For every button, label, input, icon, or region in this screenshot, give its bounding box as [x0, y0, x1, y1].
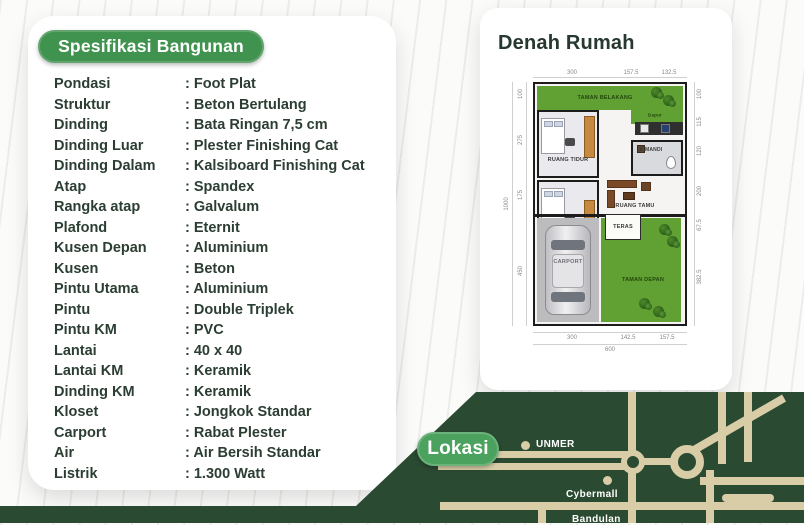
room-label-ruang-tidur-1: RUANG TIDUR	[548, 157, 589, 163]
spec-row: Dinding DalamKalsiboard Finishing Cat	[54, 156, 384, 177]
carport-area	[537, 218, 599, 322]
front-wall	[639, 214, 685, 217]
spec-label: Carport	[54, 423, 185, 444]
dimension-line	[533, 344, 687, 345]
windshield	[551, 240, 585, 250]
spec-row: Pintu UtamaAluminium	[54, 279, 384, 300]
dimension-line	[526, 82, 527, 326]
spec-row: Lantai40 x 40	[54, 341, 384, 362]
map-road	[440, 502, 804, 510]
map-road	[538, 506, 546, 523]
map-label-cybermall: Cybermall	[566, 489, 618, 500]
map-label-bandulan: Bandulan	[572, 514, 621, 525]
dimension-label: 275	[518, 135, 524, 145]
dimension-label: 142.5	[620, 335, 635, 341]
dimension-label: 600	[605, 347, 615, 353]
unmer-marker-icon	[521, 441, 530, 450]
room-label-taman-depan: TAMAN DEPAN	[622, 277, 664, 283]
lokasi-badge: Lokasi	[417, 432, 499, 466]
dimension-label: 100	[697, 89, 703, 99]
spec-label: Pintu	[54, 300, 185, 321]
spec-label: Kloset	[54, 402, 185, 423]
plan-title: Denah Rumah	[498, 32, 635, 55]
spec-label: Kusen	[54, 259, 185, 280]
spec-row: KlosetJongkok Standar	[54, 402, 384, 423]
spec-row: AirAir Bersih Standar	[54, 443, 384, 464]
map-road	[718, 392, 726, 464]
dimension-label: 120	[697, 146, 703, 156]
spec-label: Pintu KM	[54, 320, 185, 341]
spec-label: Dinding Luar	[54, 136, 185, 157]
room-label-dapur: Dapur	[648, 113, 662, 118]
map-road	[744, 392, 752, 462]
front-wall	[535, 214, 605, 217]
spec-label: Listrik	[54, 464, 185, 485]
pillow	[544, 191, 553, 197]
spec-row: CarportRabat Plester	[54, 423, 384, 444]
roundabout-icon	[621, 450, 645, 474]
spec-label: Atap	[54, 177, 185, 198]
spec-row: Rangka atapGalvalum	[54, 197, 384, 218]
spec-row: DindingBata Ringan 7,5 cm	[54, 115, 384, 136]
plant-icon	[653, 306, 664, 317]
map-road	[722, 494, 774, 502]
map-road	[700, 477, 804, 485]
dimension-line	[533, 332, 687, 333]
spec-value: 40 x 40	[185, 341, 384, 362]
spec-row: Pintu KMPVC	[54, 320, 384, 341]
spec-value: Bata Ringan 7,5 cm	[185, 115, 384, 136]
spec-label: Dinding Dalam	[54, 156, 185, 177]
room-label-teras: TERAS	[613, 224, 633, 230]
floorplan-card: Denah Rumah 300 157.5 132.5 300 142.5 15…	[480, 8, 732, 390]
bed	[541, 118, 565, 154]
dimension-label: 157.5	[623, 70, 638, 76]
spec-row: PintuDouble Triplek	[54, 300, 384, 321]
spec-value: Keramik	[185, 361, 384, 382]
spec-label: Pondasi	[54, 74, 185, 95]
spec-list: PondasiFoot Plat StrukturBeton Bertulang…	[54, 74, 384, 484]
spec-value: Aluminium	[185, 279, 384, 300]
spec-label: Dinding	[54, 115, 185, 136]
dimension-label: 450	[518, 266, 524, 276]
pillow	[544, 121, 553, 127]
spec-row: PlafondEternit	[54, 218, 384, 239]
room-label-ruang-tamu: RUANG TAMU	[615, 203, 654, 209]
room-label-taman-belakang: TAMAN BELAKANG	[578, 95, 633, 101]
dimension-label: 200	[697, 186, 703, 196]
dimension-label: 382.5	[697, 269, 703, 284]
sofa	[607, 180, 637, 188]
spec-value: Galvalum	[185, 197, 384, 218]
spec-row: Kusen DepanAluminium	[54, 238, 384, 259]
plant-icon	[663, 95, 674, 106]
floorplan: 300 157.5 132.5 300 142.5 157.5 600 100 …	[500, 70, 712, 366]
spec-row: AtapSpandex	[54, 177, 384, 198]
spec-label: Air	[54, 443, 185, 464]
map-road	[628, 468, 636, 523]
spec-label: Rangka atap	[54, 197, 185, 218]
spec-row: Dinding KMKeramik	[54, 382, 384, 403]
spec-label: Kusen Depan	[54, 238, 185, 259]
room-label-kmandi: K.MANDI	[640, 147, 663, 153]
spec-label: Lantai	[54, 341, 185, 362]
dimension-label: 175	[518, 190, 524, 200]
spec-value: Rabat Plester	[185, 423, 384, 444]
spec-value: Keramik	[185, 382, 384, 403]
spec-label: Struktur	[54, 95, 185, 116]
dimension-line	[512, 82, 513, 326]
stove-icon	[661, 124, 670, 133]
spec-row: Lantai KMKeramik	[54, 361, 384, 382]
dimension-label: 132.5	[661, 70, 676, 76]
plant-icon	[651, 87, 662, 98]
spec-value: 1.300 Watt	[185, 464, 384, 485]
dimension-line	[694, 82, 695, 326]
spec-card: Spesifikasi Bangunan PondasiFoot Plat St…	[28, 16, 396, 490]
spec-value: Double Triplek	[185, 300, 384, 321]
wardrobe	[584, 116, 595, 158]
spec-value: Beton	[185, 259, 384, 280]
bedroom-1	[537, 110, 599, 178]
spec-row: Dinding LuarPlester Finishing Cat	[54, 136, 384, 157]
map-road	[692, 395, 786, 454]
spec-value: Eternit	[185, 218, 384, 239]
dimension-label: 300	[567, 335, 577, 341]
car-icon	[545, 225, 591, 315]
spec-value: Spandex	[185, 177, 384, 198]
spec-row: Listrik1.300 Watt	[54, 464, 384, 485]
cybermall-marker-icon	[603, 476, 612, 485]
spec-label: Plafond	[54, 218, 185, 239]
map-label-unmer: UNMER	[536, 439, 575, 450]
toilet	[666, 156, 676, 169]
sofa	[607, 190, 615, 208]
plant-icon	[639, 298, 650, 309]
spec-label: Dinding KM	[54, 382, 185, 403]
spec-value: Plester Finishing Cat	[185, 136, 384, 157]
bathroom	[631, 140, 683, 176]
spec-value: Beton Bertulang	[185, 95, 384, 116]
dimension-label: 157.5	[659, 335, 674, 341]
dimension-line	[533, 77, 687, 78]
house-plot: TAMAN BELAKANG Dapur RUANG TIDUR	[533, 82, 687, 326]
spec-row: KusenBeton	[54, 259, 384, 280]
pillow	[554, 191, 563, 197]
coffee-table	[623, 192, 635, 200]
room-label-carport: CARPORT	[553, 259, 582, 265]
spec-row: StrukturBeton Bertulang	[54, 95, 384, 116]
spec-label: Pintu Utama	[54, 279, 185, 300]
armchair	[641, 182, 651, 191]
spec-value: Jongkok Standar	[185, 402, 384, 423]
rear-window	[551, 292, 585, 302]
desk	[565, 138, 575, 146]
spec-label: Lantai KM	[54, 361, 185, 382]
plant-icon	[667, 236, 678, 247]
kitchen-counter	[635, 122, 683, 135]
dimension-label: 300	[567, 70, 577, 76]
spec-value: Kalsiboard Finishing Cat	[185, 156, 384, 177]
plant-icon	[659, 224, 670, 235]
spec-badge: Spesifikasi Bangunan	[38, 30, 264, 63]
sink-icon	[640, 124, 649, 133]
map-road	[628, 392, 636, 454]
pillow	[554, 121, 563, 127]
map-road	[706, 470, 714, 523]
spec-value: Aluminium	[185, 238, 384, 259]
spec-value: Air Bersih Standar	[185, 443, 384, 464]
dimension-label: 100	[518, 89, 524, 99]
spec-value: Foot Plat	[185, 74, 384, 95]
roundabout-icon	[670, 445, 704, 479]
spec-value: PVC	[185, 320, 384, 341]
spec-row: PondasiFoot Plat	[54, 74, 384, 95]
dimension-label: 115	[697, 117, 703, 127]
dimension-label: 67.5	[697, 219, 703, 231]
dimension-label: 1000	[504, 197, 510, 210]
